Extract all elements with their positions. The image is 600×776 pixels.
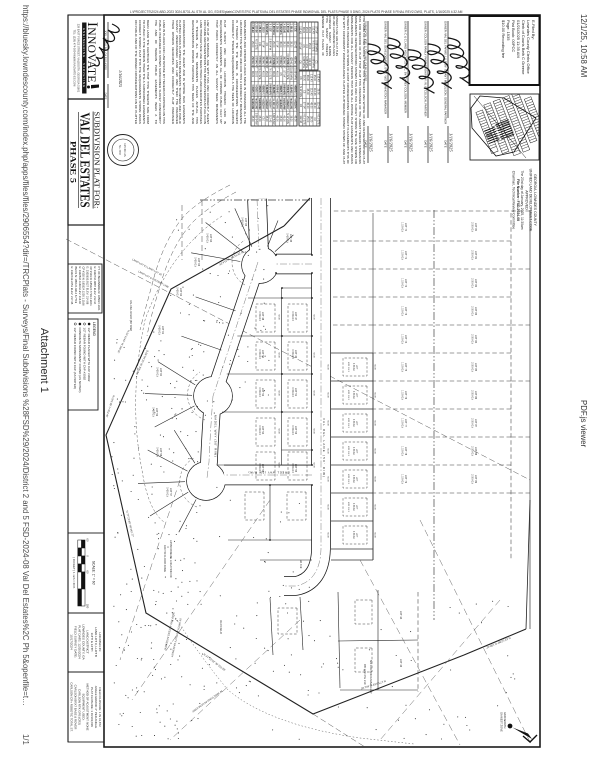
svg-text:56.00: 56.00 <box>327 532 329 538</box>
svg-text:LOT 85: LOT 85 <box>474 363 477 372</box>
svg-text:N 89°51'37" W 112.41': N 89°51'37" W 112.41' <box>290 85 293 110</box>
svg-text:LOT 88: LOT 88 <box>474 447 477 456</box>
svg-text:E-Filed By:: E-Filed By: <box>531 20 536 40</box>
svg-text:56.00: 56.00 <box>373 364 375 370</box>
svg-text:38.20: 38.20 <box>302 27 305 34</box>
svg-text:1/16/2025: 1/16/2025 <box>449 133 454 152</box>
svg-text:C10: C10 <box>261 116 264 121</box>
svg-text:45.00: 45.00 <box>261 71 264 78</box>
svg-text:60: 60 <box>86 571 90 574</box>
svg-text:Plat Book: 00PCC: Plat Book: 00PCC <box>511 20 516 52</box>
svg-text:C10 25.19: C10 25.19 <box>261 21 264 33</box>
svg-text:112.43: 112.43 <box>311 26 314 34</box>
svg-text:S 88°54'W: S 88°54'W <box>305 56 308 68</box>
svg-text:N 11°22'E: N 11°22'E <box>311 40 314 51</box>
svg-text:No. 3092: No. 3092 <box>118 145 121 155</box>
svg-text:57°14': 57°14' <box>276 41 279 49</box>
svg-text:LOT: LOT <box>355 421 357 426</box>
svg-text:57°14': 57°14' <box>283 70 286 78</box>
svg-text:LOT 43: LOT 43 <box>399 659 402 668</box>
svg-text:1/2" REBAR PLACED WITH CAP #30: 1/2" REBAR PLACED WITH CAP #3092 <box>87 328 91 382</box>
svg-text:112.43: 112.43 <box>299 26 302 34</box>
svg-text:112.43: 112.43 <box>308 58 311 66</box>
svg-text:60.00: 60.00 <box>278 428 280 434</box>
svg-text:60.00: 60.00 <box>278 390 280 396</box>
svg-text:LOT 64: LOT 64 <box>209 234 212 243</box>
svg-text:C12 25.11: C12 25.11 <box>254 21 257 33</box>
svg-text:25.00: 25.00 <box>251 41 254 48</box>
svg-text:Lowndes County Clerks Office: Lowndes County Clerks Office <box>526 20 531 75</box>
svg-text:LOT 52: LOT 52 <box>261 388 264 397</box>
svg-text:38.20: 38.20 <box>306 75 309 82</box>
svg-text:N 89°52'37" W 112.42': N 89°52'37" W 112.42' <box>251 85 254 110</box>
svg-text:LOT 48: LOT 48 <box>261 312 264 321</box>
svg-text:GEORGIA, LOWNDES COUNTY: GEORGIA, LOWNDES COUNTY <box>533 174 537 226</box>
svg-text:LAND DISTRICT: LAND DISTRICT <box>86 630 90 653</box>
svg-text:N 37°15'02" W 312.55': N 37°15'02" W 312.55' <box>203 652 227 672</box>
svg-text:38.20: 38.20 <box>286 41 289 48</box>
svg-text:C9: C9 <box>265 43 268 47</box>
svg-text:57°40'34": 57°40'34" <box>265 58 268 69</box>
svg-text:LOT 83: LOT 83 <box>474 307 477 316</box>
svg-text:Attachment 1: Attachment 1 <box>38 328 50 393</box>
svg-text:GREEL WAY (50' R/W): GREEL WAY (50' R/W) <box>248 471 290 475</box>
svg-text:25.00: 25.00 <box>313 75 316 82</box>
svg-text:100 YR FLOOD ZONE: 100 YR FLOOD ZONE <box>163 545 167 572</box>
svg-text:C13 25.12: C13 25.12 <box>251 21 254 33</box>
svg-text:112.43: 112.43 <box>309 88 312 96</box>
svg-text:57°14': 57°14' <box>299 42 302 50</box>
svg-text:57°14': 57°14' <box>315 26 318 34</box>
svg-text:N 11°22'E: N 11°22'E <box>258 68 261 79</box>
svg-text:LOT 77: LOT 77 <box>404 419 407 428</box>
svg-text:DATE: DATE <box>403 140 407 147</box>
svg-text:$10.00 Recording fee: $10.00 Recording fee <box>501 20 506 59</box>
svg-text:LOT 82: LOT 82 <box>474 279 477 288</box>
svg-text:60.00: 60.00 <box>278 462 280 468</box>
svg-text:DB 1234 PG 210: DB 1234 PG 210 <box>363 664 367 685</box>
svg-text:Clerk of Courts Beth C Greene: Clerk of Courts Beth C Greene <box>521 20 526 75</box>
svg-text:MFF 214.5: MFF 214.5 <box>347 362 349 373</box>
svg-text:25.00: 25.00 <box>265 71 268 78</box>
svg-text:LOT 80: LOT 80 <box>474 223 477 232</box>
svg-text:N 89°53'37" W 112.43': N 89°53'37" W 112.43' <box>283 85 286 110</box>
svg-text:SCALE: 1" = 60': SCALE: 1" = 60' <box>92 561 96 586</box>
svg-text:LOT 51: LOT 51 <box>294 388 297 397</box>
svg-text:LOT 44: LOT 44 <box>399 611 402 620</box>
svg-text:S 88°54'W: S 88°54'W <box>268 38 271 50</box>
svg-text:N 11°22'E: N 11°22'E <box>316 114 319 125</box>
svg-text:57°40'43": 57°40'43" <box>254 58 257 69</box>
svg-text:25.00: 25.00 <box>254 71 257 78</box>
svg-text:57°40'31": 57°40'31" <box>268 58 271 69</box>
svg-text:112.43: 112.43 <box>316 102 319 110</box>
svg-text:LOT 75: LOT 75 <box>404 363 407 372</box>
svg-text:N 89°58'37" W 112.48': N 89°58'37" W 112.48' <box>265 85 268 110</box>
svg-text:LOT 79: LOT 79 <box>404 475 407 484</box>
svg-text:N 89°56'37" W 112.46': N 89°56'37" W 112.46' <box>272 85 275 110</box>
svg-text:EQUIPMENT USED:: EQUIPMENT USED: <box>82 694 86 721</box>
svg-text:N/F COLSON FARMS LLLP: N/F COLSON FARMS LLLP <box>369 660 373 694</box>
svg-text:File Number: FSD-2024-08: File Number: FSD-2024-08 <box>516 179 520 221</box>
svg-text:LOT 47: LOT 47 <box>294 312 297 321</box>
svg-text:GEORGIA: GEORGIA <box>123 143 127 157</box>
svg-text:LOT 78: LOT 78 <box>404 447 407 456</box>
svg-text:ANGLE ERROR: 2" PER ANGLE: ANGLE ERROR: 2" PER ANGLE <box>94 686 98 729</box>
svg-text:1/16/2025: 1/16/2025 <box>369 133 374 152</box>
svg-text:OWNER: VAL DEL DEVELOPMENT, BY: OWNER: VAL DEL DEVELOPMENT, BY: T. WETHE… <box>383 21 387 114</box>
svg-text:S 88°54'W: S 88°54'W <box>315 40 318 52</box>
svg-text:LOT 60: LOT 60 <box>159 368 162 377</box>
svg-text:S 88°54'W: S 88°54'W <box>290 68 293 80</box>
svg-text:45.00: 45.00 <box>283 115 286 122</box>
svg-text:C3 25.12: C3 25.12 <box>286 22 289 33</box>
svg-text:MFF 214.5: MFF 214.5 <box>347 390 349 401</box>
svg-text:45.00: 45.00 <box>308 27 311 34</box>
svg-text:56.00: 56.00 <box>373 448 375 454</box>
svg-text:L:\PROJECTS\2024 ABD-2023 3024: L:\PROJECTS\2024 ABD-2023 3024-B731-AL S… <box>130 10 463 14</box>
svg-text:36 419: 36 419 <box>299 560 303 569</box>
svg-text:25.00: 25.00 <box>272 41 275 48</box>
svg-text:56.00: 56.00 <box>327 448 329 454</box>
svg-text:38.20: 38.20 <box>309 116 312 123</box>
svg-text:LOT 73: LOT 73 <box>404 307 407 316</box>
svg-text:N 89°57'37" W 112.47': N 89°57'37" W 112.47' <box>268 85 271 110</box>
svg-text:SUBDIVISION PLAT FOR:: SUBDIVISION PLAT FOR: <box>93 112 102 209</box>
svg-text:C7 25.16: C7 25.16 <box>272 22 275 33</box>
svg-text:60.00: 60.00 <box>312 462 314 468</box>
svg-text:57°40'37": 57°40'37" <box>261 58 264 69</box>
svg-text:112.43: 112.43 <box>268 115 271 123</box>
svg-text:LOT: LOT <box>355 393 357 398</box>
svg-text:01/21/2025 11:35 AM: 01/21/2025 11:35 AM <box>516 20 521 58</box>
svg-text:57°40'28": 57°40'28" <box>272 58 275 69</box>
svg-text:LOT 81: LOT 81 <box>474 251 477 260</box>
svg-text:The 23rd day of January, 2025,: The 23rd day of January, 2025, 11:30am <box>520 170 524 229</box>
svg-text:DATE: DATE <box>383 140 387 147</box>
svg-text:57°14': 57°14' <box>302 102 305 110</box>
svg-text:60: 60 <box>86 539 90 542</box>
svg-text:229 EAST FORCE STREET, VALDOST: 229 EAST FORCE STREET, VALDOSTA, GEORGIA… <box>77 24 81 93</box>
svg-text:LOT 84: LOT 84 <box>474 335 477 344</box>
svg-text:25.00: 25.00 <box>258 115 261 122</box>
svg-text:LOT 45: LOT 45 <box>289 234 292 243</box>
svg-text:C9 25.18: C9 25.18 <box>265 22 268 33</box>
svg-text:45.00: 45.00 <box>309 102 312 109</box>
svg-text:C11: C11 <box>258 42 261 47</box>
svg-text:FIELD CLOSURE: 1 IN 41,872: FIELD CLOSURE: 1 IN 41,872 <box>98 687 102 727</box>
svg-text:56.00: 56.00 <box>373 504 375 510</box>
svg-text:R=375.00' L=122.40': R=375.00' L=122.40' <box>105 395 115 418</box>
svg-text:45.00: 45.00 <box>276 71 279 78</box>
svg-text:0: 0 <box>86 555 90 557</box>
svg-text:10/17/2024: 10/17/2024 <box>69 634 73 650</box>
svg-text:57°40'22": 57°40'22" <box>279 58 282 69</box>
svg-text:LAND LOT 9, LLOT B: LAND LOT 9, LLOT B <box>94 627 98 657</box>
svg-text:LOT 89: LOT 89 <box>474 475 477 484</box>
svg-text:LOT 57: LOT 57 <box>169 488 172 497</box>
svg-text:CARLSON BRX7 BASE & ROVER: CARLSON BRX7 BASE & ROVER <box>73 685 77 730</box>
svg-text:C6 25.15: C6 25.15 <box>276 22 279 33</box>
svg-text:PHASE 5: PHASE 5 <box>69 141 79 183</box>
svg-text:LOT 50: LOT 50 <box>261 350 264 359</box>
svg-text:LOT 59: LOT 59 <box>155 408 158 417</box>
svg-text:180: 180 <box>86 604 90 609</box>
svg-text:N 23°12'08" E 138.42': N 23°12'08" E 138.42' <box>485 636 511 650</box>
svg-text:112.43: 112.43 <box>309 74 312 82</box>
svg-text:112.43: 112.43 <box>293 41 296 49</box>
svg-text:1/2" REBAR FOUND WITH CAP (AS: 1/2" REBAR FOUND WITH CAP (AS NOTED) <box>73 328 77 390</box>
svg-text:57°40'25": 57°40'25" <box>276 58 279 69</box>
svg-text:N 89°54'37" W 112.44': N 89°54'37" W 112.44' <box>279 85 282 110</box>
svg-text:112.43: 112.43 <box>316 74 319 82</box>
svg-text:DATE: DATE <box>104 93 108 100</box>
svg-text:45.00: 45.00 <box>313 102 316 109</box>
svg-text:PLAT CLOSURE: 1 IN 999,999: PLAT CLOSURE: 1 IN 999,999 <box>90 687 94 727</box>
svg-text:LOT 49: LOT 49 <box>294 350 297 359</box>
svg-text:FIELD SURVEY DATE:: FIELD SURVEY DATE: <box>73 626 77 658</box>
svg-text:56.00: 56.00 <box>327 504 329 510</box>
svg-text:LOT 87: LOT 87 <box>474 419 477 428</box>
svg-text:60.00: 60.00 <box>312 314 314 320</box>
svg-text:112.43: 112.43 <box>299 115 302 123</box>
svg-text:112.43: 112.43 <box>313 88 316 96</box>
svg-text:45.00: 45.00 <box>265 115 268 122</box>
svg-text:1/2" REBAR FOUND WITH CAP #309: 1/2" REBAR FOUND WITH CAP #3092 <box>82 328 86 381</box>
svg-text:MFF 214.5: MFF 214.5 <box>347 446 349 457</box>
svg-text:LOT 70: LOT 70 <box>404 223 407 232</box>
svg-text:LEGEND: LEGEND <box>92 322 96 336</box>
svg-text:56.00: 56.00 <box>327 364 329 370</box>
svg-text:C5 25.14: C5 25.14 <box>279 22 282 33</box>
svg-text:25.00: 25.00 <box>305 27 308 34</box>
svg-text:45.00: 45.00 <box>306 88 309 95</box>
svg-text:Page: 1935: Page: 1935 <box>506 20 511 41</box>
svg-text:N 11°22'E: N 11°22'E <box>286 68 289 79</box>
svg-text:LOT 71: LOT 71 <box>404 251 407 260</box>
svg-text:25.00: 25.00 <box>316 88 319 95</box>
svg-text:N 89°50'37" W 112.40': N 89°50'37" W 112.40' <box>258 85 261 110</box>
svg-text:VAL DEL LANE (50' R/W): VAL DEL LANE (50' R/W) <box>322 418 326 478</box>
svg-text:1/16/2025: 1/16/2025 <box>118 70 123 87</box>
svg-text:LOT 86: LOT 86 <box>474 391 477 400</box>
svg-text:APPROVED: APPROVED <box>524 190 528 210</box>
svg-text:Chairman, Technical Review Com: Chairman, Technical Review Committee <box>512 171 516 230</box>
svg-text:APPROXIMATE LOCATION OF: APPROXIMATE LOCATION OF <box>169 540 173 578</box>
svg-text:LOT: LOT <box>355 477 357 482</box>
svg-text:38.20: 38.20 <box>283 41 286 48</box>
svg-text:N 11°22'E: N 11°22'E <box>299 86 302 97</box>
svg-text:LOT: LOT <box>355 505 357 510</box>
svg-text:ENGINEERING · SURVEYING: ENGINEERING · SURVEYING <box>82 28 86 88</box>
svg-text:DATE: DATE <box>423 140 427 147</box>
svg-text:MFF 214.5: MFF 214.5 <box>347 502 349 513</box>
svg-text:LOT 62: LOT 62 <box>179 288 182 297</box>
svg-text:VAL DEL ESTATES: VAL DEL ESTATES <box>78 113 93 208</box>
svg-text:56.00: 56.00 <box>373 420 375 426</box>
svg-text:60.00: 60.00 <box>312 352 314 358</box>
svg-text:LOCATED IN:: LOCATED IN: <box>98 632 102 651</box>
svg-text:LOT 63: LOT 63 <box>197 258 200 267</box>
svg-text:METHOD OF ADJUSTMENT: NONE: METHOD OF ADJUSTMENT: NONE <box>86 683 90 730</box>
svg-text:N 89°55'37" W 112.45': N 89°55'37" W 112.45' <box>276 85 279 110</box>
svg-text:11TH & 12TH: 11TH & 12TH <box>90 633 94 652</box>
svg-text:S 88°54'W: S 88°54'W <box>293 68 296 80</box>
svg-text:LOT 61: LOT 61 <box>161 326 164 335</box>
svg-text:OLD FIELD: OLD FIELD <box>219 620 223 634</box>
svg-text:60.00: 60.00 <box>312 428 314 434</box>
svg-text:57°40'16": 57°40'16" <box>286 58 289 69</box>
svg-text:S 88°54'W: S 88°54'W <box>254 113 257 125</box>
svg-text:N 11°22'E: N 11°22'E <box>302 114 305 125</box>
svg-text:PT. OF BEGINNING N: 185024.10: PT. OF BEGINNING N: 185024.1041 <box>97 267 101 312</box>
svg-text:LOT 58: LOT 58 <box>159 448 162 457</box>
svg-text:45.00: 45.00 <box>279 41 282 48</box>
svg-text:57°40'19": 57°40'19" <box>283 58 286 69</box>
svg-text:56.00: 56.00 <box>373 532 375 538</box>
svg-text:38.20: 38.20 <box>302 75 305 82</box>
svg-text:C2 25.11: C2 25.11 <box>290 22 293 33</box>
svg-text:UNIFIED LAND DEVELOPMENT CODE: UNIFIED LAND DEVELOPMENT CODE <box>529 169 533 232</box>
svg-text:CONCRETE MONUMENT FOUND (AS NO: CONCRETE MONUMENT FOUND (AS NOTED) <box>78 328 82 393</box>
svg-text:LOWNDES COUNTY, GA: LOWNDES COUNTY, GA <box>82 624 86 660</box>
svg-text:56.00: 56.00 <box>327 476 329 482</box>
svg-text:MFF 214.5: MFF 214.5 <box>347 474 349 485</box>
svg-text:LOT: LOT <box>355 365 357 370</box>
svg-text:N 11°22'E: N 11°22'E <box>254 39 257 50</box>
svg-text:38.20: 38.20 <box>272 71 275 78</box>
svg-text:C11 25.10: C11 25.10 <box>258 21 261 33</box>
svg-text:N 89°59'37" W 112.49': N 89°59'37" W 112.49' <box>261 85 264 110</box>
svg-text:57°40'10": 57°40'10" <box>293 58 296 69</box>
svg-text:C1 25.10: C1 25.10 <box>293 22 296 33</box>
svg-text:LOT 55: LOT 55 <box>294 464 297 473</box>
svg-text:56.00: 56.00 <box>327 420 329 426</box>
svg-text:LOT 53: LOT 53 <box>294 426 297 435</box>
svg-text:45.00: 45.00 <box>306 102 309 109</box>
svg-text:LOT 65: LOT 65 <box>244 218 247 227</box>
svg-text:C8 25.17: C8 25.17 <box>268 22 271 33</box>
svg-text:45.00: 45.00 <box>293 115 296 122</box>
svg-text:GRID NORTH: GRID NORTH <box>503 712 507 729</box>
svg-text:57°14': 57°14' <box>261 41 264 49</box>
svg-text:N 62°10'44" W 158.02': N 62°10'44" W 158.02' <box>116 330 130 354</box>
svg-text:1/16/2025: 1/16/2025 <box>429 133 434 152</box>
svg-text:25.00: 25.00 <box>308 43 311 50</box>
svg-text:PLAT DATE: 12/20/2024: PLAT DATE: 12/20/2024 <box>78 625 82 659</box>
svg-text:56.00: 56.00 <box>327 392 329 398</box>
svg-text:57°40'46": 57°40'46" <box>251 58 254 69</box>
svg-text:36' WIDE POND ACCESS ESMT: 36' WIDE POND ACCESS ESMT <box>191 689 223 713</box>
svg-text:57°40'40": 57°40'40" <box>258 58 261 69</box>
svg-text:LOT: LOT <box>355 533 357 538</box>
svg-text:N 11°22'E: N 11°22'E <box>268 68 271 79</box>
svg-text:25.00: 25.00 <box>306 116 309 123</box>
svg-text:N 11°22'E: N 11°22'E <box>286 113 289 124</box>
svg-text:C4 25.13: C4 25.13 <box>283 22 286 33</box>
svg-text:56.00: 56.00 <box>373 476 375 482</box>
svg-text:LOT 72: LOT 72 <box>404 279 407 288</box>
svg-text:LOT 76: LOT 76 <box>404 391 407 400</box>
svg-text:CARLSON RTK GPS (CR2): CARLSON RTK GPS (CR2) <box>78 689 82 725</box>
svg-text:38.20: 38.20 <box>290 41 293 48</box>
svg-text:56.00: 56.00 <box>373 392 375 398</box>
svg-text:N 89°51'37" W 112.41': N 89°51'37" W 112.41' <box>254 85 257 110</box>
svg-text:45.00: 45.00 <box>251 115 254 122</box>
svg-text:60.00: 60.00 <box>312 390 314 396</box>
svg-text:60.00: 60.00 <box>278 314 280 320</box>
svg-text:1/16/2025: 1/16/2025 <box>409 133 414 152</box>
svg-text:VICINITY MAP (NTS): VICINITY MAP (NTS) <box>464 113 468 142</box>
svg-text:25.00: 25.00 <box>279 115 282 122</box>
svg-text:S 88°54'W: S 88°54'W <box>272 113 275 125</box>
svg-text:57°40'13": 57°40'13" <box>290 58 293 69</box>
svg-text:60.00: 60.00 <box>278 352 280 358</box>
svg-text:CARLSON CR+ ROBOTIC TOTAL ST.: CARLSON CR+ ROBOTIC TOTAL ST. <box>69 682 73 731</box>
svg-text:S 88°54'W: S 88°54'W <box>311 56 314 68</box>
svg-text:LOT: LOT <box>355 449 357 454</box>
svg-text:1/16/2025: 1/16/2025 <box>389 133 394 152</box>
svg-text:38.20: 38.20 <box>290 115 293 122</box>
svg-text:MFF 214.5: MFF 214.5 <box>347 418 349 429</box>
svg-text:LOT 54: LOT 54 <box>261 426 264 435</box>
svg-text:38.20: 38.20 <box>251 71 254 78</box>
svg-text:N 89°50'37" W 112.40': N 89°50'37" W 112.40' <box>293 85 296 110</box>
svg-text:DATE: DATE <box>443 140 447 147</box>
svg-text:VAL DEL ROAD (80' R/W): VAL DEL ROAD (80' R/W) <box>129 300 133 331</box>
svg-text:45.00: 45.00 <box>276 115 279 122</box>
svg-text:( IN FEET ) 1 inch = 60 ft.: ( IN FEET ) 1 inch = 60 ft. <box>72 557 76 589</box>
svg-text:S 88°54'W: S 88°54'W <box>302 56 305 68</box>
svg-text:LOT 74: LOT 74 <box>404 335 407 344</box>
svg-text:N 89°52'37" W 112.42': N 89°52'37" W 112.42' <box>286 85 289 110</box>
svg-text:MADEL WAY (50' R/W): MADEL WAY (50' R/W) <box>214 415 218 457</box>
